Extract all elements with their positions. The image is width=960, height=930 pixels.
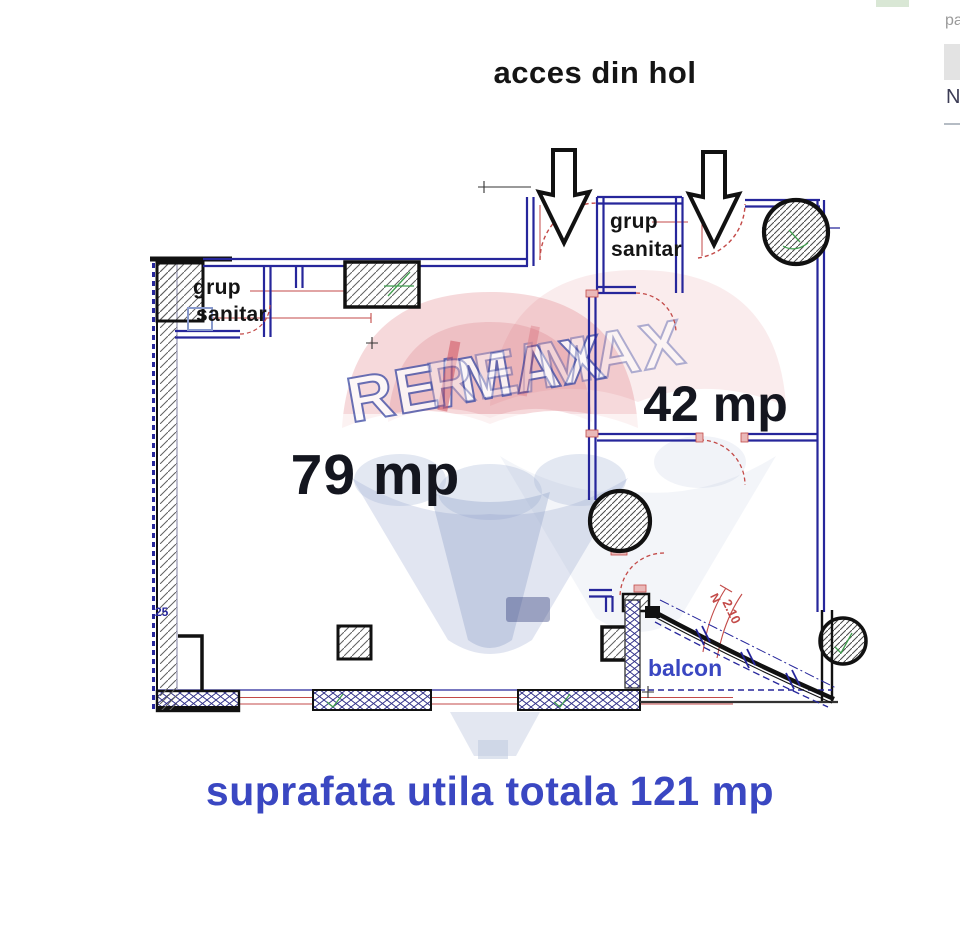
sanitar-top-label-line1: grup (610, 211, 658, 232)
sanitar-left-label-line2: sanitar (196, 304, 267, 325)
entrance-arrow-left (539, 150, 589, 243)
balcony-label: balcon (648, 657, 722, 680)
bottom-wall (157, 690, 645, 711)
remax-watermark: RE/MAX RE/MAX (336, 270, 786, 759)
page-edge-partial-label: N (946, 87, 960, 107)
page-title: acces din hol (400, 57, 790, 88)
sanitar-left-label-line1: grup (193, 277, 241, 298)
left-wall-dimension: 25 (155, 606, 168, 618)
room-42-area-label: 42 mp (613, 379, 818, 429)
room-79-area-label: 79 mp (268, 447, 483, 504)
page-edge-button-fragment[interactable] (944, 44, 960, 80)
page-edge-partial-text: pa (945, 13, 960, 29)
total-area-caption: suprafata utila totala 121 mp (140, 771, 840, 812)
page-edge-decoration (876, 0, 909, 7)
floor-plan-page: RE/MAX RE/MAX (0, 0, 960, 930)
left-wall (150, 259, 232, 712)
sanitar-top-label-line2: sanitar (611, 239, 682, 260)
page-edge-divider (944, 123, 960, 125)
entrance-arrow-right (689, 152, 739, 245)
